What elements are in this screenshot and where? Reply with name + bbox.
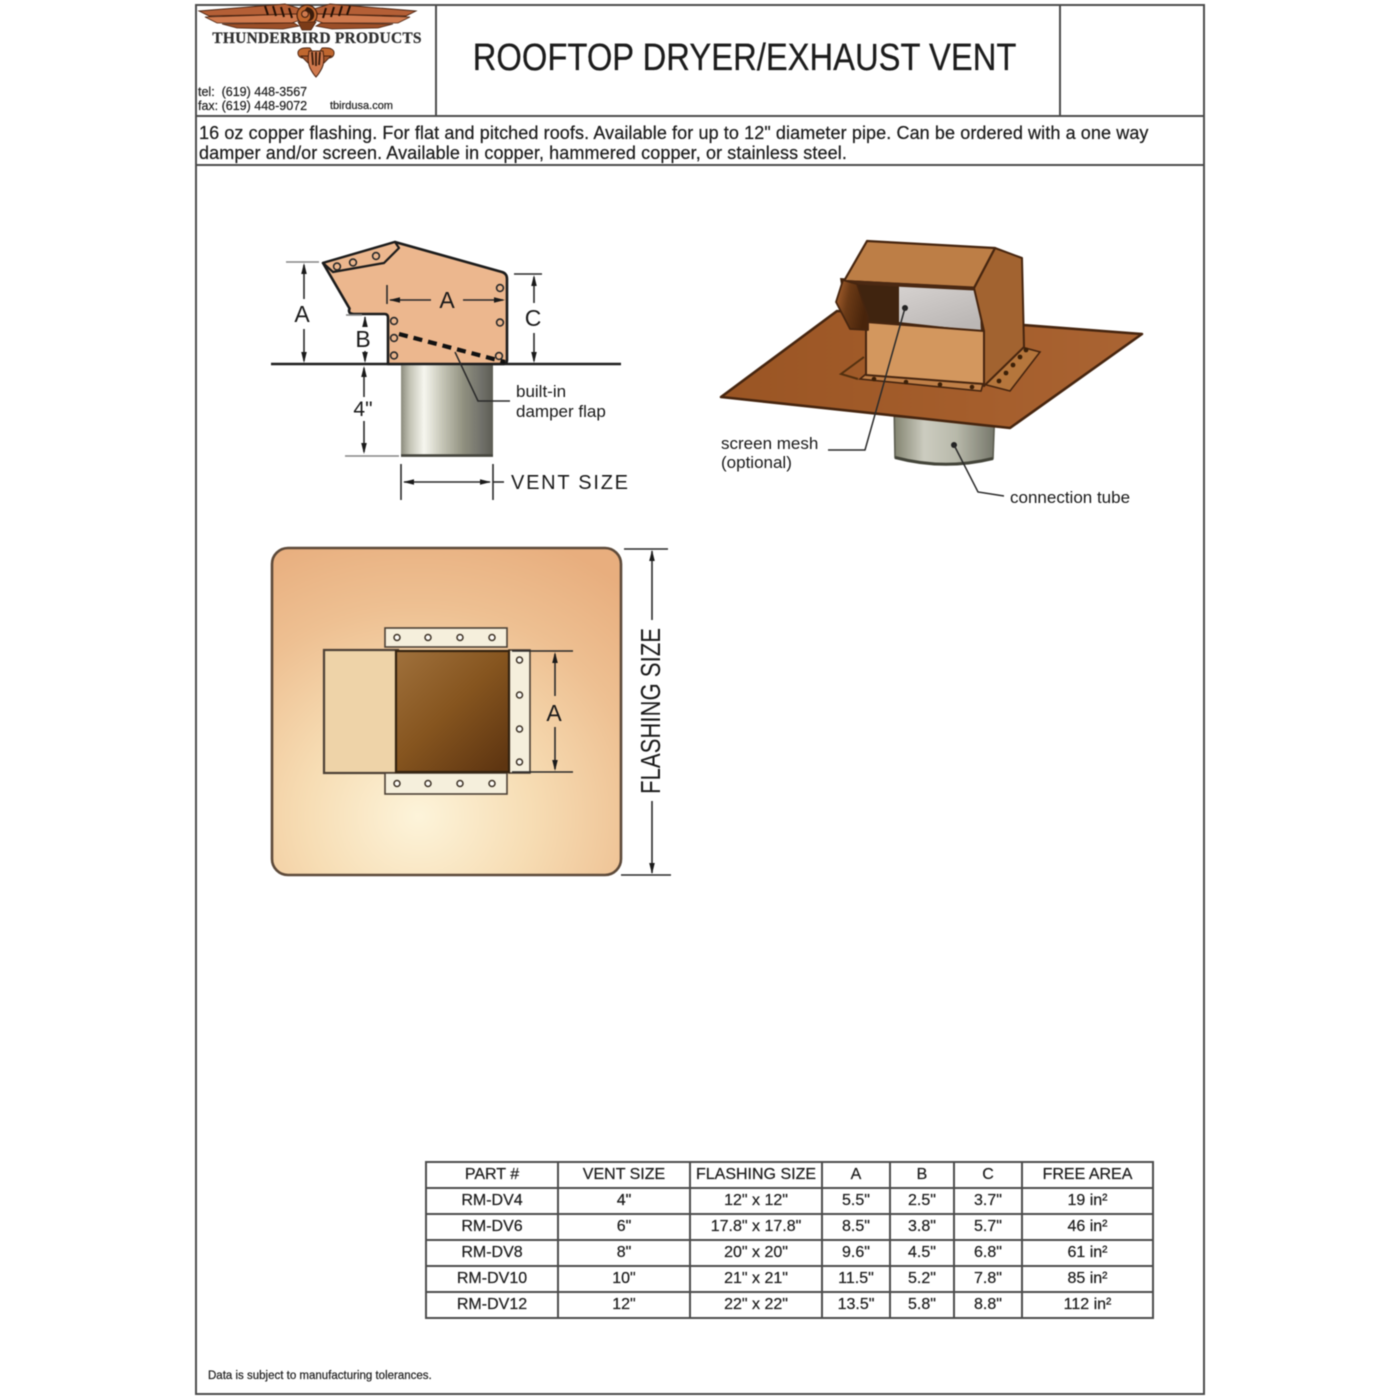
- svg-text:4": 4": [353, 398, 372, 421]
- svg-text:A: A: [546, 700, 562, 726]
- svg-text:damper flap: damper flap: [516, 402, 606, 421]
- svg-text:FLASHING SIZE: FLASHING SIZE: [635, 628, 666, 794]
- svg-text:A: A: [294, 301, 310, 327]
- svg-text:A: A: [439, 287, 455, 313]
- svg-text:VENT SIZE: VENT SIZE: [511, 472, 628, 494]
- svg-text:C: C: [525, 305, 542, 331]
- svg-text:built-in: built-in: [516, 382, 566, 401]
- svg-text:B: B: [355, 326, 370, 352]
- svg-text:connection tube: connection tube: [1010, 488, 1130, 507]
- svg-text:screen mesh: screen mesh: [721, 434, 818, 453]
- svg-text:(optional): (optional): [721, 453, 792, 472]
